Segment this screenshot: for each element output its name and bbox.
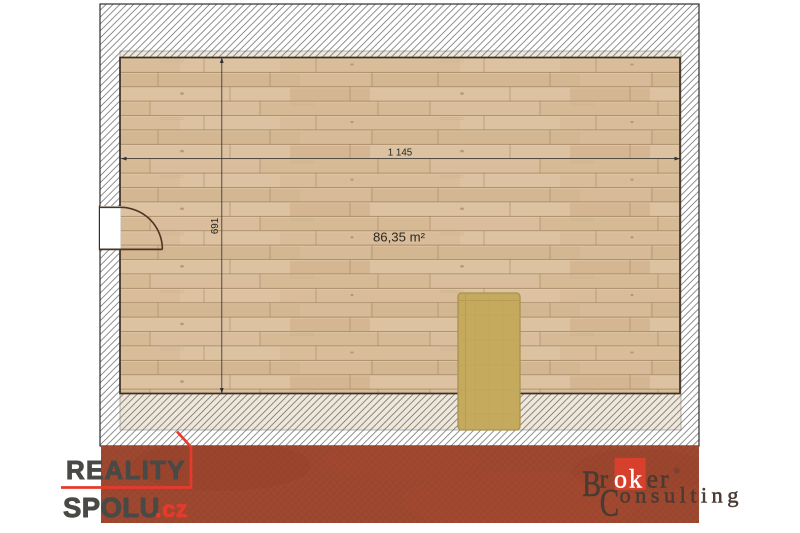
svg-text:®: ® [674,466,681,476]
svg-text:SPOLU: SPOLU [63,492,160,523]
svg-text:onsulting: onsulting [620,483,743,508]
svg-text:1 145: 1 145 [388,147,413,158]
svg-text:691: 691 [210,218,221,234]
svg-text:C: C [600,481,619,524]
svg-text:B: B [582,464,601,505]
svg-text:86,35 m²: 86,35 m² [373,230,426,245]
svg-text:.cz: .cz [155,496,188,522]
svg-text:REALITY: REALITY [66,455,186,485]
